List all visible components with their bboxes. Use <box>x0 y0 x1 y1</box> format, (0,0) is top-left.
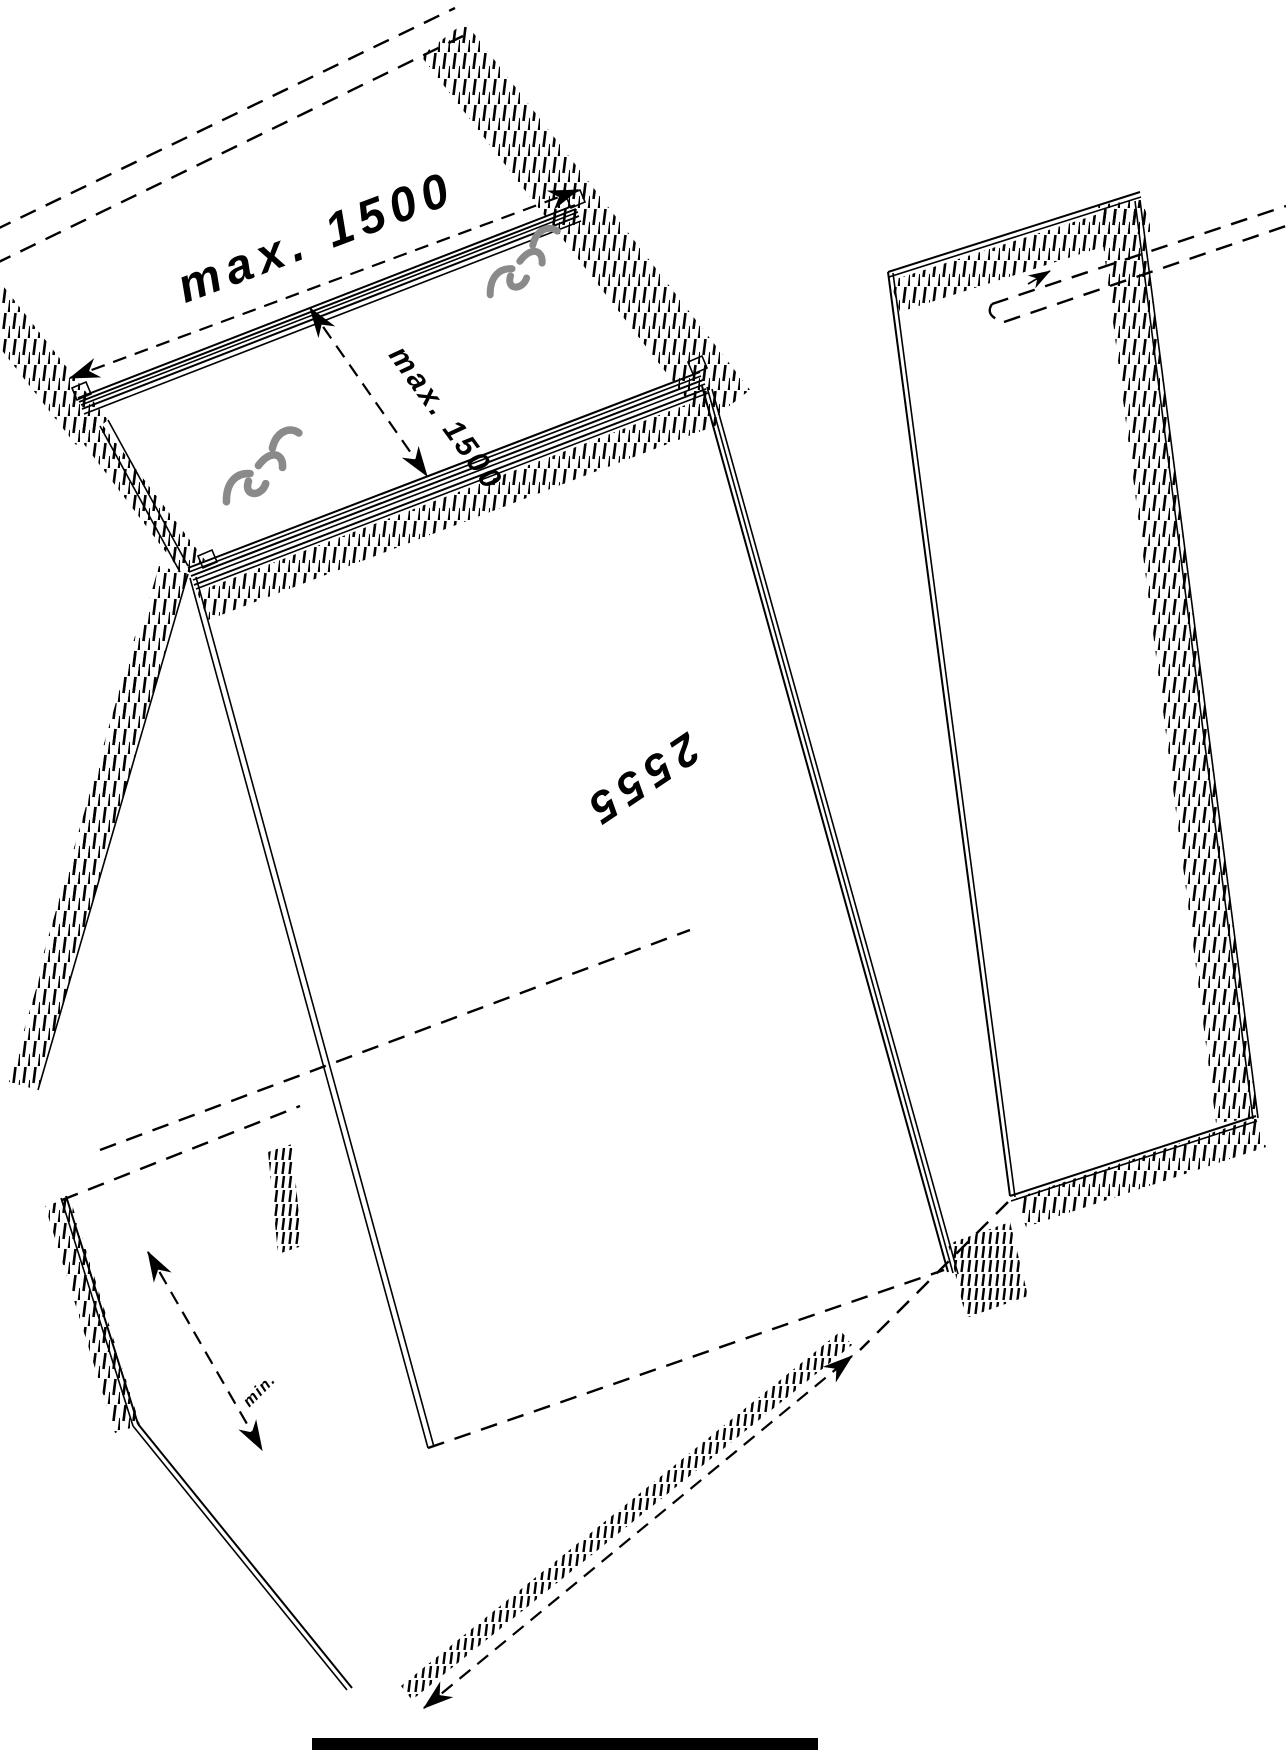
hatched-strip <box>268 1144 302 1254</box>
panel-lower-edge <box>133 1426 347 1690</box>
dimension-label-min: min. <box>240 1371 280 1411</box>
panel-lower-edge <box>138 1424 352 1688</box>
pointer-arrow <box>1028 271 1050 284</box>
hatched-jamb <box>74 415 205 576</box>
hatched-edge-left <box>45 1198 140 1433</box>
phantom-rail-end-cap <box>990 304 1004 322</box>
dimension-line-min <box>148 1252 262 1450</box>
jamb-edge-line <box>108 420 188 566</box>
isometric-assembly-drawing: max. 1500 max. 1500 <box>0 0 1286 1750</box>
panel-side-line <box>38 574 188 1090</box>
mounting-clip-icon <box>210 427 314 505</box>
panel-right-edge <box>702 386 948 1272</box>
hatched-edge-right <box>1098 200 1258 1123</box>
mounting-clip-icon <box>475 225 571 298</box>
technical-drawing-page: max. 1500 max. 1500 <box>0 0 1286 1750</box>
panel-left-edge <box>893 273 1015 1197</box>
hatched-edge-right <box>421 22 750 424</box>
dimension-max-1500-side: max. 1500 <box>310 308 509 497</box>
hatched-edge-left-inner <box>40 636 150 970</box>
panel-bottom-phantom <box>428 1270 944 1448</box>
panel-right <box>860 192 1286 1350</box>
panel-top-left <box>0 8 750 576</box>
hatched-edge-left-side <box>9 566 188 1090</box>
jamb-edge-line <box>100 426 180 572</box>
panel-bottom-left: min. <box>45 1106 352 1690</box>
panel-left-edge <box>196 577 434 1447</box>
bottom-bar <box>312 1738 818 1750</box>
panel-left-edge <box>888 272 1010 1196</box>
dimension-label-max-1500-top: max. 1500 <box>170 161 463 313</box>
panel-right-edge <box>1135 201 1253 1119</box>
panel-right-edge <box>707 387 953 1273</box>
hatched-edge-bottom <box>1016 1118 1266 1227</box>
fold-line-phantom <box>100 930 690 1150</box>
panel-bottom-right <box>312 1331 852 1750</box>
panel-left-edge <box>190 578 428 1448</box>
dimension-line-bottom <box>424 1356 852 1708</box>
hatched-corner-patch <box>948 1222 1028 1318</box>
hatched-bottom-edge <box>401 1331 852 1700</box>
panel-center: 2555 <box>9 386 958 1448</box>
dimension-label-length: 2555 <box>574 723 710 837</box>
